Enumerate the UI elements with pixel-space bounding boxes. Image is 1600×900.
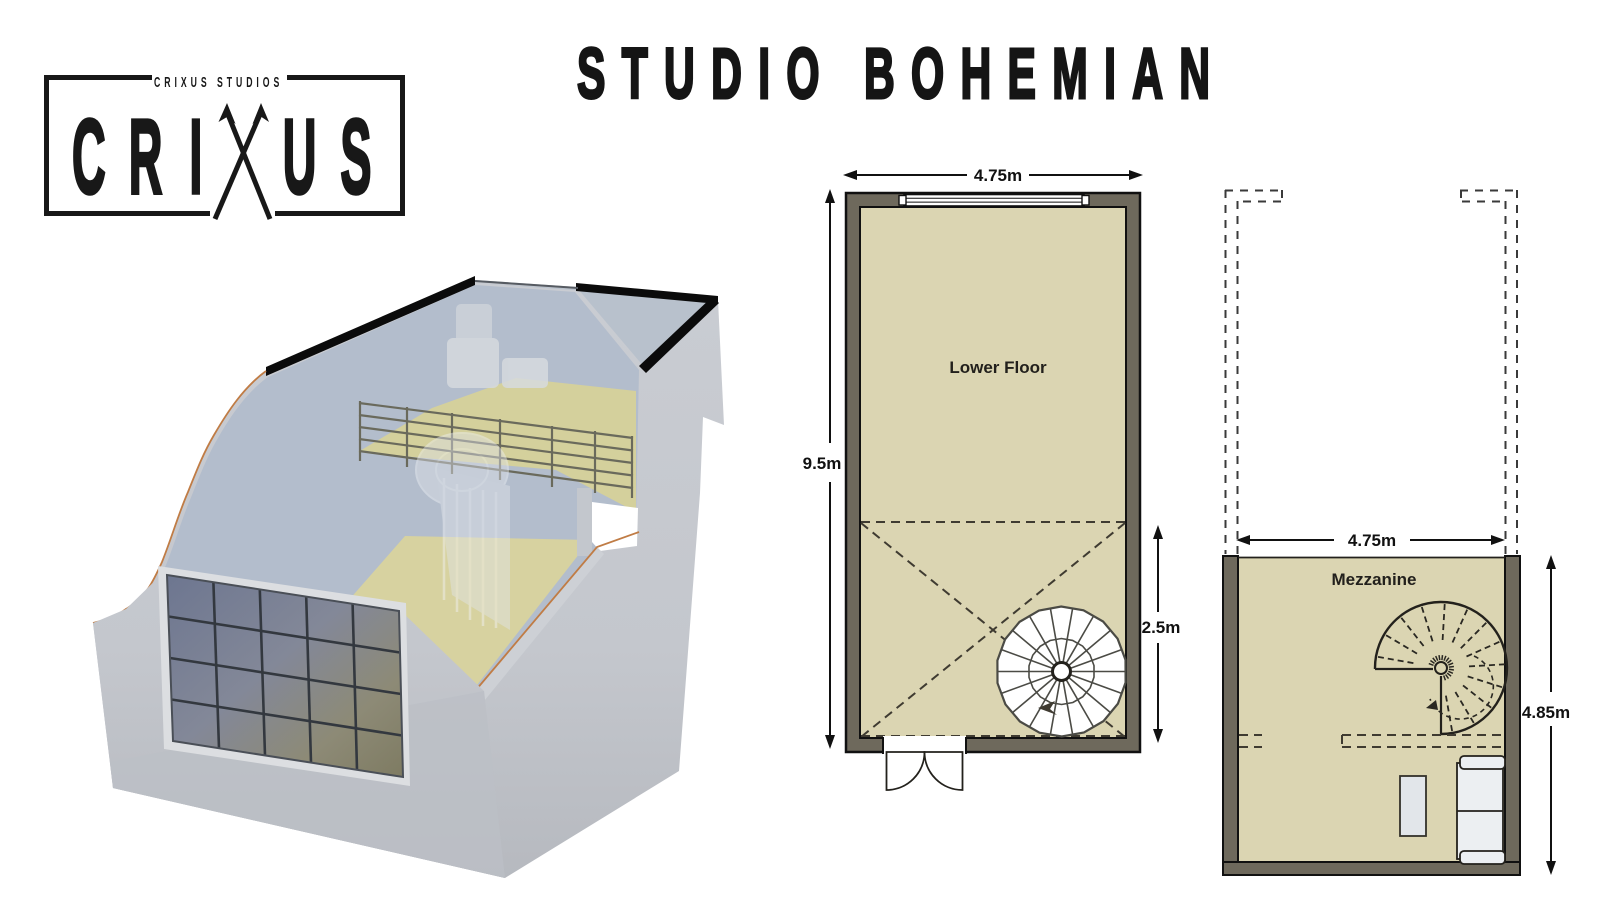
svg-text:Lower Floor: Lower Floor [949, 358, 1047, 377]
svg-text:CRIXUS STUDIOS: CRIXUS STUDIOS [154, 74, 283, 91]
svg-text:STUDIO BOHEMIAN: STUDIO BOHEMIAN [577, 35, 1226, 114]
svg-text:U: U [283, 99, 317, 217]
svg-text:9.5m: 9.5m [803, 454, 842, 473]
svg-text:4.85m: 4.85m [1522, 703, 1570, 722]
svg-text:4.75m: 4.75m [1348, 531, 1396, 550]
svg-text:S: S [340, 99, 371, 217]
svg-text:2.5m: 2.5m [1142, 618, 1181, 637]
svg-text:Mezzanine: Mezzanine [1331, 570, 1416, 589]
svg-text:R: R [129, 99, 163, 217]
svg-text:I: I [189, 99, 202, 217]
svg-text:4.75m: 4.75m [974, 166, 1022, 185]
svg-text:C: C [72, 99, 106, 217]
